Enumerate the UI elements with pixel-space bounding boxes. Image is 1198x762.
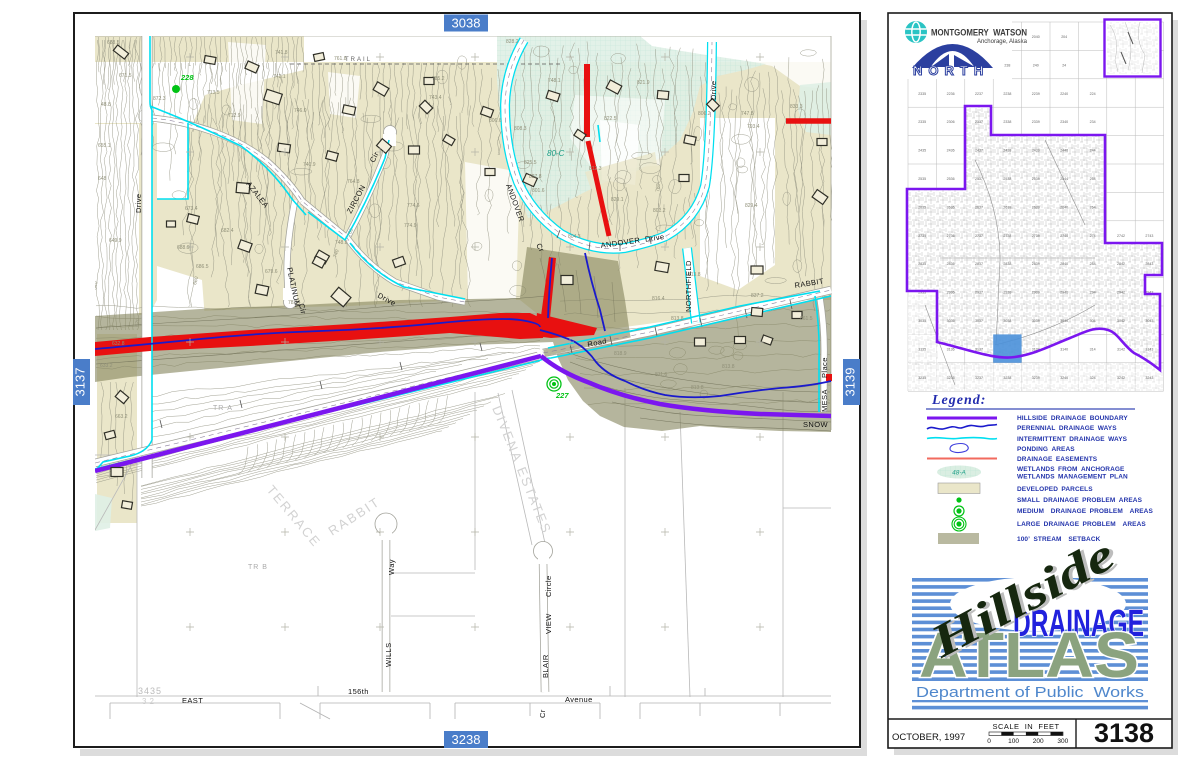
svg-text:2437: 2437	[975, 149, 983, 153]
svg-text:3142: 3142	[1117, 347, 1125, 351]
svg-text:2240: 2240	[1060, 92, 1068, 96]
svg-text:LARGE DRAINAGE PROBLEM AREAS: LARGE DRAINAGE PROBLEM AREAS	[1017, 521, 1146, 528]
svg-text:3140: 3140	[1060, 347, 1068, 351]
svg-text:2338: 2338	[1003, 120, 1011, 124]
svg-text:827.8: 827.8	[529, 174, 542, 180]
svg-text:2435: 2435	[918, 149, 926, 153]
svg-text:3137: 3137	[975, 347, 983, 351]
svg-text:2335: 2335	[918, 92, 926, 96]
svg-text:2942: 2942	[1117, 291, 1125, 295]
svg-text:156th: 156th	[348, 687, 369, 696]
svg-text:204: 204	[1061, 35, 1067, 39]
svg-text:837.2: 837.2	[751, 293, 764, 299]
svg-text:3235: 3235	[918, 376, 926, 380]
svg-text:3135: 3135	[918, 347, 926, 351]
svg-text:WETLANDS MANAGEMENT PLAN: WETLANDS MANAGEMENT PLAN	[1017, 474, 1128, 481]
svg-text:228: 228	[180, 73, 194, 82]
svg-text:2735: 2735	[918, 234, 926, 238]
svg-text:PONDING AREAS: PONDING AREAS	[1017, 446, 1075, 453]
svg-text:663.2: 663.2	[115, 414, 128, 420]
svg-text:PERENNIAL DRAINAGE WAYS: PERENNIAL DRAINAGE WAYS	[1017, 425, 1117, 432]
svg-text:632.8: 632.8	[112, 341, 125, 347]
svg-text:274: 274	[1090, 234, 1096, 238]
svg-text:829.4: 829.4	[745, 203, 758, 209]
svg-text:MESA: MESA	[820, 389, 829, 412]
svg-text:2842: 2842	[1117, 262, 1125, 266]
svg-text:2940: 2940	[1060, 291, 1068, 295]
svg-text:304: 304	[1090, 319, 1096, 323]
svg-text:818.9: 818.9	[614, 351, 627, 357]
svg-text:2306: 2306	[947, 120, 955, 124]
svg-text:813.8: 813.8	[691, 385, 704, 391]
svg-text:3037: 3037	[975, 319, 983, 323]
svg-text:Cr: Cr	[538, 709, 547, 718]
svg-text:2340: 2340	[1060, 120, 1068, 124]
svg-text:688.5: 688.5	[107, 40, 120, 46]
svg-text:2739: 2739	[1032, 234, 1040, 238]
svg-text:806.2: 806.2	[698, 111, 711, 117]
svg-text:2438: 2438	[1003, 149, 1011, 153]
svg-text:WETLANDS FROM ANCHORAGE: WETLANDS FROM ANCHORAGE	[1017, 466, 1125, 473]
svg-text:801.6: 801.6	[532, 188, 545, 194]
svg-text:2640: 2640	[1060, 205, 1068, 209]
svg-text:SNOW: SNOW	[803, 420, 828, 429]
svg-text:Legend:: Legend:	[931, 393, 986, 408]
svg-text:2440: 2440	[1060, 149, 1068, 153]
svg-text:3139: 3139	[843, 368, 858, 397]
svg-text:3242: 3242	[1117, 376, 1125, 380]
svg-text:2335: 2335	[918, 120, 926, 124]
svg-text:3036: 3036	[947, 319, 955, 323]
svg-text:793.4: 793.4	[747, 124, 760, 130]
svg-text:740.9: 740.9	[303, 162, 316, 168]
svg-text:785.2: 785.2	[432, 76, 445, 82]
svg-text:673.4: 673.4	[185, 206, 198, 212]
svg-text:2740: 2740	[1060, 234, 1068, 238]
svg-text:3238: 3238	[452, 732, 481, 747]
svg-text:3043: 3043	[1145, 319, 1153, 323]
svg-text:3039: 3039	[1032, 319, 1040, 323]
svg-text:SCALE IN FEET: SCALE IN FEET	[992, 722, 1059, 731]
svg-text:2237: 2237	[975, 92, 983, 96]
svg-text:746.0: 746.0	[294, 108, 307, 114]
svg-text:811.6: 811.6	[655, 372, 667, 378]
svg-text:816.4: 816.4	[652, 296, 665, 302]
svg-text:649.9: 649.9	[109, 238, 122, 244]
svg-text:2535: 2535	[918, 177, 926, 181]
svg-text:3238: 3238	[1003, 376, 1011, 380]
svg-text:284: 284	[1090, 262, 1096, 266]
svg-text:Department of Public Works: Department of Public Works	[916, 685, 1144, 701]
svg-text:813.8: 813.8	[722, 364, 735, 370]
svg-text:2835: 2835	[918, 262, 926, 266]
svg-text:264: 264	[1090, 205, 1096, 209]
svg-text:829.1: 829.1	[611, 197, 624, 203]
svg-text:2937: 2937	[975, 291, 983, 295]
svg-text:813.8: 813.8	[671, 316, 684, 322]
svg-text:3137: 3137	[73, 368, 88, 397]
svg-text:BLAIR: BLAIR	[541, 654, 550, 678]
svg-text:808.3: 808.3	[514, 126, 527, 132]
svg-text:2238: 2238	[1003, 92, 1011, 96]
svg-text:2538: 2538	[1003, 177, 1011, 181]
svg-text:2736: 2736	[947, 234, 955, 238]
svg-text:774.6: 774.6	[407, 203, 420, 209]
svg-text:2939: 2939	[1032, 291, 1040, 295]
svg-text:MEDIUM DRAINAGE PROBLEM AREA: MEDIUM DRAINAGE PROBLEM AREAS	[1017, 508, 1153, 515]
svg-text:Circle: Circle	[544, 575, 553, 597]
svg-text:3237: 3237	[975, 376, 983, 380]
svg-text:828.2: 828.2	[506, 39, 519, 45]
svg-text:3038: 3038	[1003, 319, 1011, 323]
svg-text:2743: 2743	[1145, 234, 1153, 238]
svg-text:TR A: TR A	[213, 405, 233, 412]
svg-text:80-C: 80-C	[547, 149, 565, 158]
svg-text:825.5: 825.5	[524, 160, 537, 166]
svg-text:SMALL DRAINAGE PROBLEM AREAS: SMALL DRAINAGE PROBLEM AREAS	[1017, 497, 1143, 504]
svg-text:Drive: Drive	[134, 193, 143, 213]
svg-text:324: 324	[1090, 376, 1096, 380]
svg-text:294: 294	[1090, 291, 1096, 295]
svg-text:3136: 3136	[947, 347, 955, 351]
svg-text:314: 314	[1090, 347, 1096, 351]
svg-text:821.9: 821.9	[637, 80, 650, 86]
svg-text:2636: 2636	[947, 205, 955, 209]
svg-text:747.8: 747.8	[741, 111, 754, 117]
svg-text:2838: 2838	[1003, 262, 1011, 266]
svg-text:764.8: 764.8	[347, 179, 360, 185]
svg-text:748.8: 748.8	[335, 240, 348, 246]
svg-text:833.3: 833.3	[790, 104, 803, 110]
svg-text:0: 0	[987, 738, 991, 745]
svg-text:2836: 2836	[947, 262, 955, 266]
svg-text:742.1: 742.1	[273, 74, 286, 80]
svg-text:3143: 3143	[1145, 347, 1153, 351]
svg-text:2840: 2840	[1060, 262, 1068, 266]
svg-text:2837: 2837	[975, 262, 983, 266]
svg-text:806.6: 806.6	[489, 118, 502, 124]
svg-text:VIEW: VIEW	[544, 613, 553, 634]
svg-text:32: 32	[142, 697, 157, 706]
svg-text:2537: 2537	[975, 177, 983, 181]
svg-text:633.2: 633.2	[100, 363, 113, 369]
svg-text:HILLSIDE DRAINAGE BOUNDARY: HILLSIDE DRAINAGE BOUNDARY	[1017, 415, 1128, 422]
svg-text:2236: 2236	[947, 92, 955, 96]
svg-text:2339: 2339	[1032, 120, 1040, 124]
svg-text:3042: 3042	[1117, 319, 1125, 323]
svg-text:801.2: 801.2	[653, 208, 666, 214]
svg-text:3038: 3038	[452, 16, 481, 31]
svg-text:3138: 3138	[1094, 718, 1154, 748]
svg-text:2638: 2638	[1003, 205, 1011, 209]
svg-text:Place: Place	[820, 357, 829, 378]
svg-text:2843: 2843	[1145, 262, 1153, 266]
svg-text:3236: 3236	[947, 376, 955, 380]
svg-text:2938: 2938	[1003, 291, 1011, 295]
svg-text:Way: Way	[387, 559, 396, 575]
svg-text:100: 100	[1008, 738, 1019, 745]
svg-text:2337: 2337	[975, 120, 983, 124]
svg-text:2936: 2936	[947, 291, 955, 295]
svg-text:761.8: 761.8	[334, 56, 347, 62]
svg-text:MONTGOMERY WATSON: MONTGOMERY WATSON	[931, 28, 1027, 38]
svg-text:Avenue: Avenue	[565, 695, 593, 704]
svg-text:OCTOBER, 1997: OCTOBER, 1997	[892, 732, 965, 743]
svg-text:688.9: 688.9	[177, 245, 190, 251]
svg-text:254: 254	[1090, 177, 1096, 181]
svg-text:2742: 2742	[1117, 234, 1125, 238]
svg-text:3239: 3239	[1032, 376, 1040, 380]
svg-text:743.4: 743.4	[429, 95, 442, 101]
svg-text:686.5: 686.5	[196, 264, 209, 270]
svg-text:Drive: Drive	[709, 80, 718, 100]
svg-text:Anchorage, Alaska: Anchorage, Alaska	[977, 39, 1028, 45]
svg-text:234: 234	[1090, 120, 1096, 124]
svg-text:648: 648	[98, 176, 107, 182]
svg-text:2536: 2536	[947, 177, 955, 181]
svg-text:TRAIL: TRAIL	[345, 57, 372, 63]
svg-text:EAST: EAST	[182, 696, 203, 705]
svg-text:812.3: 812.3	[589, 166, 602, 172]
svg-text:741.8: 741.8	[275, 50, 288, 56]
svg-text:2239: 2239	[1032, 92, 1040, 96]
svg-text:2738: 2738	[1003, 234, 1011, 238]
svg-text:2639: 2639	[1032, 205, 1040, 209]
svg-text:DEVELOPED PARCELS: DEVELOPED PARCELS	[1017, 486, 1093, 493]
svg-text:748.1: 748.1	[548, 78, 561, 84]
svg-text:2737: 2737	[975, 234, 983, 238]
svg-text:3243: 3243	[1145, 376, 1153, 380]
svg-text:655.1: 655.1	[98, 143, 111, 149]
svg-text:780: 780	[655, 183, 662, 192]
svg-text:48.8: 48.8	[101, 102, 111, 108]
svg-text:238: 238	[1004, 63, 1010, 67]
svg-text:822.5: 822.5	[604, 116, 617, 122]
svg-text:2839: 2839	[1032, 262, 1040, 266]
svg-text:240: 240	[1033, 63, 1039, 67]
svg-text:DRAINAGE EASEMENTS: DRAINAGE EASEMENTS	[1017, 456, 1098, 463]
svg-text:682.4: 682.4	[221, 228, 234, 234]
svg-text:671.5: 671.5	[119, 73, 132, 79]
svg-text:2439: 2439	[1032, 149, 1040, 153]
svg-text:INTERMITTENT DRAINAGE WAYS: INTERMITTENT DRAINAGE WAYS	[1017, 436, 1128, 443]
svg-text:NORTHFIELD: NORTHFIELD	[684, 260, 693, 312]
svg-text:224: 224	[1090, 92, 1096, 96]
svg-text:3435: 3435	[138, 686, 162, 696]
svg-text:872.3: 872.3	[153, 96, 166, 102]
svg-text:NORTH: NORTH	[913, 63, 989, 78]
svg-text:774.9: 774.9	[404, 223, 417, 229]
svg-text:713.5: 713.5	[207, 90, 220, 96]
svg-text:200: 200	[1033, 738, 1044, 745]
svg-text:861.5: 861.5	[800, 316, 813, 322]
svg-text:227: 227	[555, 391, 569, 400]
svg-text:712.9: 712.9	[228, 113, 241, 119]
svg-text:679.6: 679.6	[265, 269, 278, 275]
svg-text:24: 24	[1062, 63, 1066, 67]
svg-text:3035: 3035	[918, 319, 926, 323]
svg-text:TR B: TR B	[248, 564, 268, 571]
svg-text:48-A: 48-A	[952, 470, 966, 477]
svg-text:2637: 2637	[975, 205, 983, 209]
svg-text:804.3: 804.3	[568, 234, 581, 240]
svg-text:300: 300	[1057, 738, 1068, 745]
svg-text:WILLS: WILLS	[384, 642, 393, 667]
svg-text:2436: 2436	[947, 149, 955, 153]
svg-text:244: 244	[1090, 149, 1096, 153]
svg-text:2635: 2635	[918, 205, 926, 209]
svg-text:2539: 2539	[1032, 177, 1040, 181]
svg-text:3240: 3240	[1060, 376, 1068, 380]
svg-text:2040: 2040	[1032, 35, 1040, 39]
